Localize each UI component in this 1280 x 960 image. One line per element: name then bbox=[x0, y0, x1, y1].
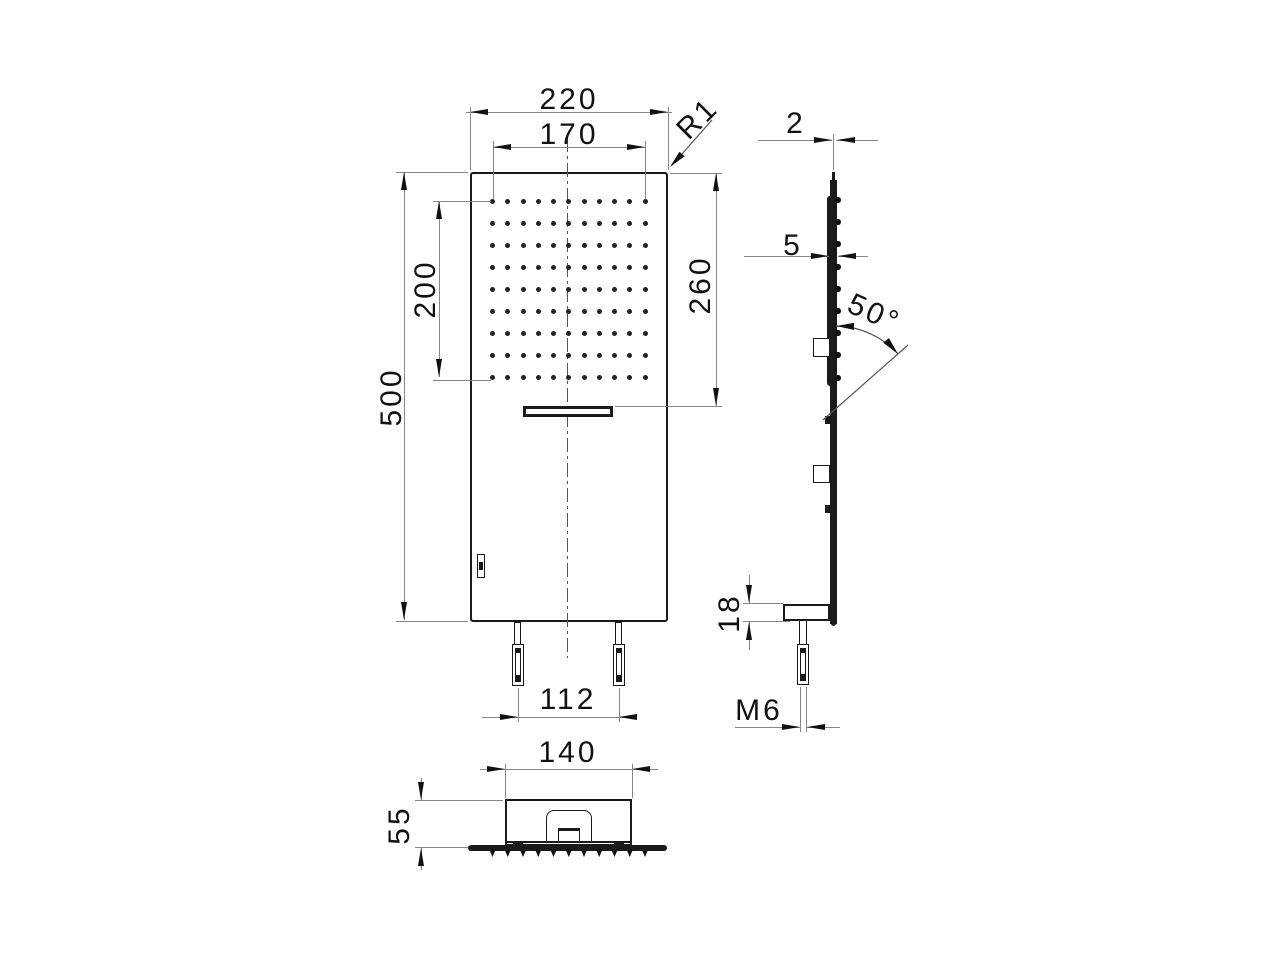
angle-50-arrowhead-top bbox=[836, 323, 854, 330]
angle-50-ray bbox=[823, 345, 908, 420]
diagonal-annotations bbox=[0, 0, 1280, 960]
angle-50-arrowhead-bottom bbox=[883, 338, 898, 354]
technical-drawing-canvas: 220 170 500 200 260 R1 112 bbox=[0, 0, 1280, 960]
